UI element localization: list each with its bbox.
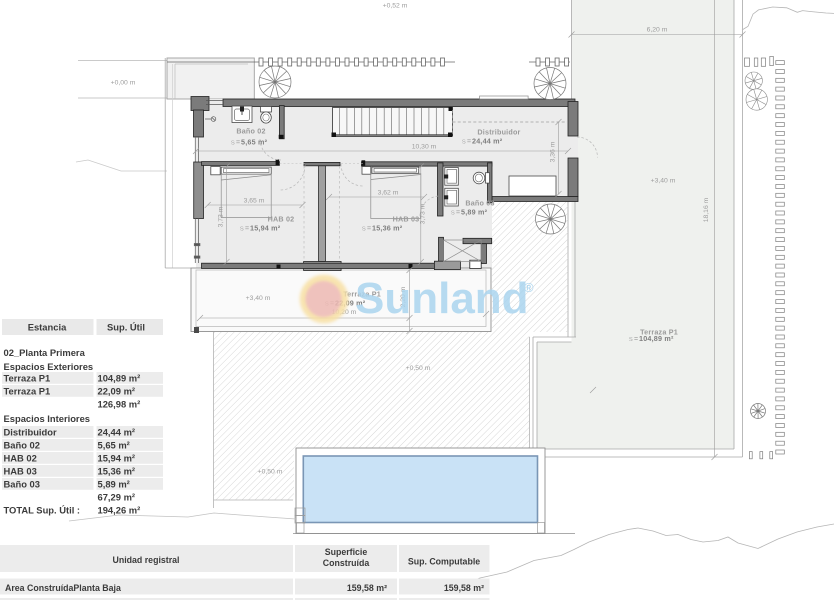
svg-text:15,94 m²: 15,94 m²: [250, 224, 281, 233]
svg-text:Estancia: Estancia: [28, 322, 67, 333]
svg-text:15,36 m²: 15,36 m²: [372, 224, 403, 233]
svg-text:3,62 m: 3,62 m: [378, 190, 399, 197]
svg-text:Terraza P1: Terraza P1: [4, 386, 51, 397]
svg-text:HAB 03: HAB 03: [393, 215, 420, 224]
svg-text:18,16 m: 18,16 m: [703, 197, 710, 222]
svg-text:Espacios Interiores: Espacios Interiores: [4, 413, 91, 424]
svg-text:Construída: Construída: [323, 558, 370, 568]
svg-text:+0,00 m: +0,00 m: [111, 80, 136, 87]
svg-text:+0,52 m: +0,52 m: [383, 3, 408, 10]
svg-text:104,89 m²: 104,89 m²: [98, 373, 141, 384]
svg-text:Area ConstruídaPlanta Baja: Area ConstruídaPlanta Baja: [5, 583, 121, 593]
svg-text:S: S: [240, 227, 244, 233]
svg-text:Baño 03: Baño 03: [465, 199, 494, 208]
svg-text:=: =: [367, 226, 371, 233]
svg-text:15,94 m²: 15,94 m²: [98, 453, 136, 464]
svg-text:HAB 02: HAB 02: [268, 215, 295, 224]
svg-text:3,73 m: 3,73 m: [420, 203, 427, 224]
svg-text:194,26 m²: 194,26 m²: [98, 505, 141, 516]
svg-text:Superficie: Superficie: [325, 547, 368, 557]
svg-text:Sup. Computable: Sup. Computable: [408, 557, 480, 567]
svg-text:3,36 m: 3,36 m: [550, 141, 557, 162]
svg-text:Baño 03: Baño 03: [4, 479, 40, 490]
svg-text:Terraza P1: Terraza P1: [4, 373, 51, 384]
svg-text:+0,50 m: +0,50 m: [258, 469, 283, 476]
svg-text:67,29 m²: 67,29 m²: [98, 492, 136, 503]
svg-text:S: S: [451, 211, 455, 217]
svg-text:=: =: [236, 140, 240, 147]
svg-text:15,36 m²: 15,36 m²: [98, 466, 136, 477]
svg-text:3,73 m: 3,73 m: [218, 206, 225, 227]
svg-text:02_Planta Primera: 02_Planta Primera: [4, 347, 86, 358]
svg-text:24,44 m²: 24,44 m²: [98, 427, 136, 438]
svg-text:104,89 m²: 104,89 m²: [639, 334, 674, 343]
svg-text:Baño 02: Baño 02: [4, 440, 40, 451]
svg-text:HAB 03: HAB 03: [4, 466, 37, 477]
svg-text:TOTAL Sup. Útil :: TOTAL Sup. Útil :: [4, 505, 81, 516]
svg-text:159,58 m²: 159,58 m²: [444, 583, 484, 593]
svg-text:Espacios Exteriores: Espacios Exteriores: [4, 361, 94, 372]
svg-text:+3,40 m: +3,40 m: [246, 295, 271, 302]
svg-text:Unidad registral: Unidad registral: [113, 555, 180, 565]
svg-text:HAB 02: HAB 02: [4, 453, 37, 464]
svg-text:S: S: [231, 141, 235, 147]
svg-text:Distribuidor: Distribuidor: [4, 427, 57, 438]
svg-text:5,65 m²: 5,65 m²: [241, 138, 268, 147]
svg-text:Sunland: Sunland: [355, 274, 529, 323]
svg-text:5,89 m²: 5,89 m²: [461, 208, 488, 217]
svg-text:Sup. Útil: Sup. Útil: [107, 322, 145, 333]
svg-text:=: =: [456, 210, 460, 217]
svg-text:Baño 02: Baño 02: [236, 127, 265, 136]
svg-text:S: S: [629, 337, 633, 343]
svg-text:®: ®: [524, 280, 534, 295]
svg-text:5,65 m²: 5,65 m²: [98, 440, 130, 451]
svg-text:24,44 m²: 24,44 m²: [472, 137, 503, 146]
svg-text:10,30 m: 10,30 m: [412, 144, 437, 151]
svg-text:+3,40 m: +3,40 m: [651, 178, 676, 185]
svg-text:=: =: [467, 139, 471, 146]
svg-text:+0,50 m: +0,50 m: [406, 365, 431, 372]
svg-text:S: S: [462, 140, 466, 146]
svg-text:Distribuidor: Distribuidor: [477, 128, 520, 137]
svg-text:22,09 m²: 22,09 m²: [98, 386, 136, 397]
svg-text:5,89 m²: 5,89 m²: [98, 479, 130, 490]
svg-text:=: =: [634, 336, 638, 343]
svg-text:3,65 m: 3,65 m: [244, 198, 265, 205]
svg-text:159,58 m²: 159,58 m²: [347, 583, 387, 593]
svg-text:6,20 m: 6,20 m: [647, 27, 668, 34]
svg-text:=: =: [245, 226, 249, 233]
svg-text:126,98 m²: 126,98 m²: [98, 399, 141, 410]
svg-text:S: S: [362, 227, 366, 233]
